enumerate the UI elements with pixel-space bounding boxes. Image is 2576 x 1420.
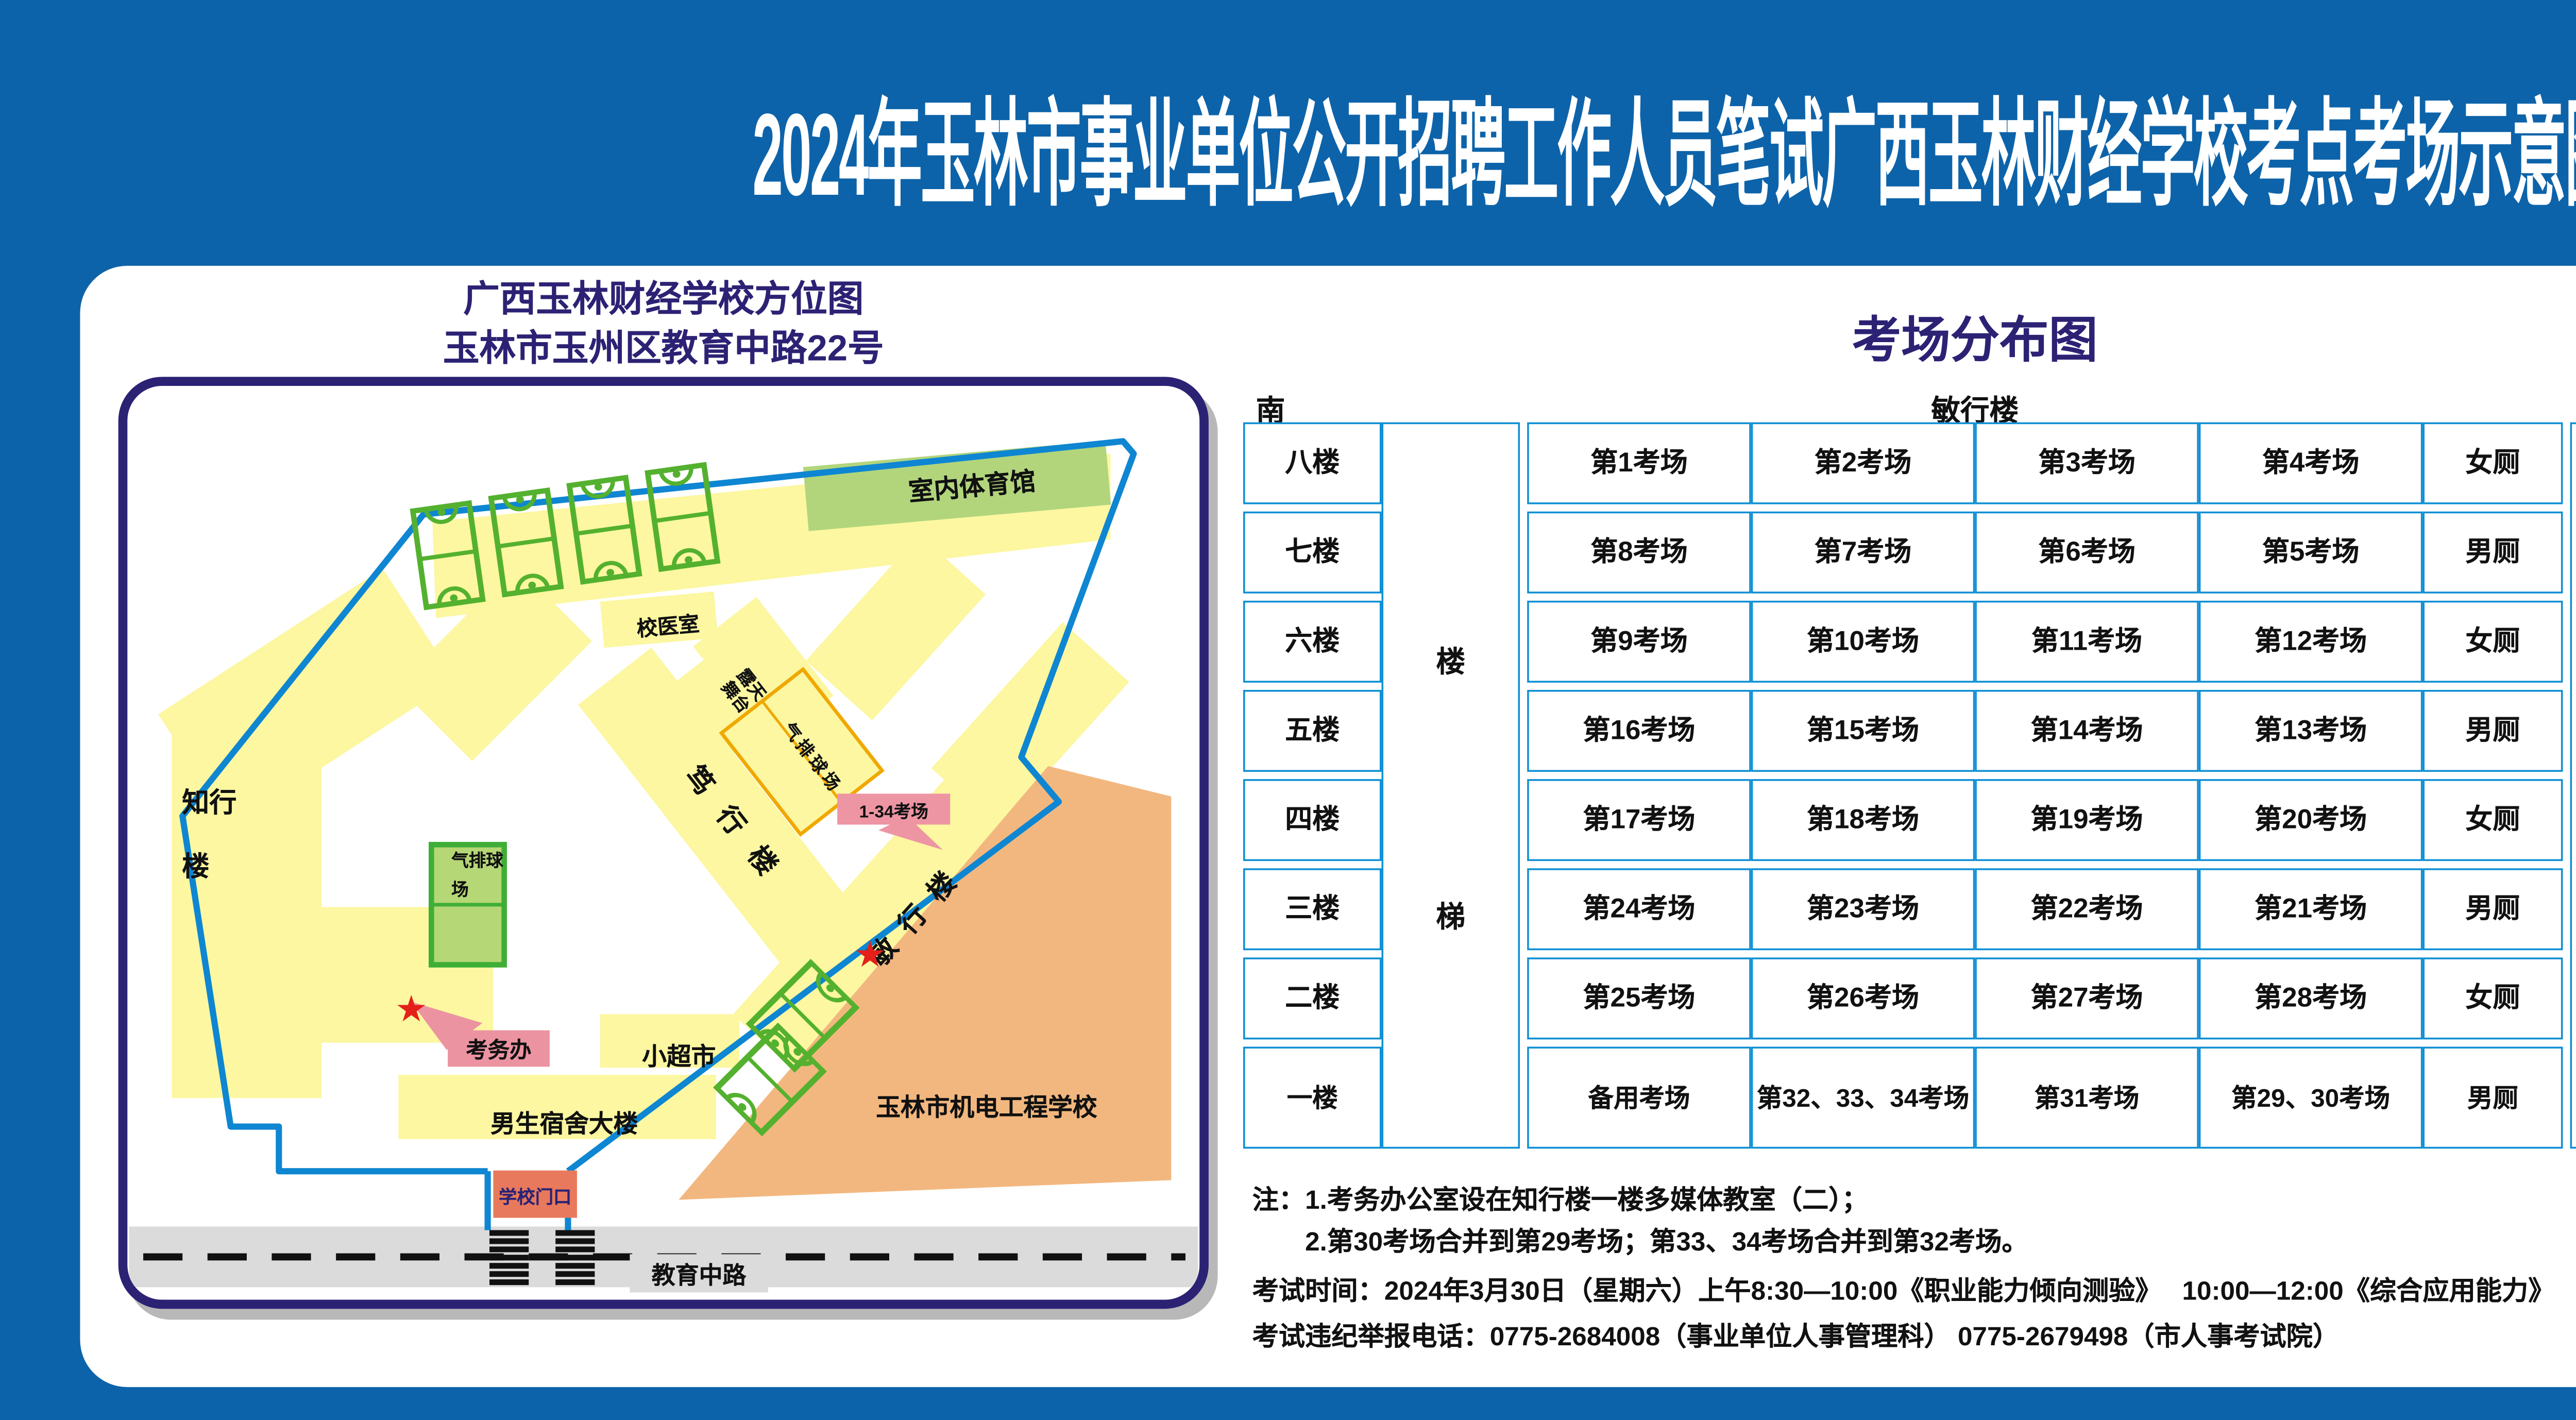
exam-room-cell: 第17考场 <box>1527 779 1751 861</box>
exam-room-cell: 第32、33、34考场 <box>1751 1046 1975 1148</box>
exam-room-cell: 第21考场 <box>2199 868 2423 950</box>
gate-label: 学校门口 <box>493 1171 577 1218</box>
exam-room-cell: 第6考场 <box>1975 512 2199 594</box>
exam-room-cell: 第23考场 <box>1751 868 1975 950</box>
page-title: 2024年玉林市事业单位公开招聘工作人员笔试广西玉林财经学校考点考场示意图 <box>753 62 2087 229</box>
floor-cell: 五楼 <box>1243 690 1382 772</box>
exam-room-cell: 第24考场 <box>1527 868 1751 950</box>
exam-office-label: 考务办 <box>448 1030 550 1067</box>
floor-cell: 七楼 <box>1243 512 1382 594</box>
exam-room-cell: 第18考场 <box>1751 779 1975 861</box>
exam-room-cell: 第19考场 <box>1975 779 2199 861</box>
exam-callout: 1-34考场 <box>837 793 950 824</box>
exam-room-cell: 第29、30考场 <box>2199 1046 2423 1148</box>
supermarket-label: 小超市 <box>608 1027 750 1081</box>
floor-cell: 八楼 <box>1243 422 1382 504</box>
exam-room-cell: 第22考场 <box>1975 868 2199 950</box>
volleyball-court-west: 气排球场 <box>428 841 507 968</box>
exam-room-cell: 第26考场 <box>1751 957 1975 1039</box>
toilet-cell: 男厕 <box>2422 512 2563 594</box>
exam-room-cell: 第11考场 <box>1975 601 2199 683</box>
exam-room-cell: 第25考场 <box>1527 957 1751 1039</box>
toilet-cell: 女厕 <box>2422 422 2563 504</box>
volleyball-west-label: 气排球场 <box>451 848 508 905</box>
exam-room-cell: 第15考场 <box>1751 690 1975 772</box>
stairs-column-left: 楼 梯 <box>1382 422 1520 1149</box>
distribution-title: 考场分布图 <box>1243 300 2576 371</box>
floor-cell: 二楼 <box>1243 957 1382 1039</box>
exam-time: 考试时间：2024年3月30日（星期六）上午8:30—10:00《职业能力倾向测… <box>1252 1278 2576 1309</box>
zhixing-label: 知行楼 <box>182 772 236 899</box>
exam-room-cell: 第4考场 <box>2199 422 2423 504</box>
floor-cell: 四楼 <box>1243 779 1382 861</box>
toilet-cell: 女厕 <box>2422 957 2563 1039</box>
exam-room-cell: 第27考场 <box>1975 957 2199 1039</box>
poster: 2024年玉林市事业单位公开招聘工作人员笔试广西玉林财经学校考点考场示意图 广西… <box>0 0 2576 1420</box>
exam-room-cell: 第5考场 <box>2199 512 2423 594</box>
floor-cell: 一楼 <box>1243 1046 1382 1148</box>
toilet-cell: 女厕 <box>2422 779 2563 861</box>
toilet-cell: 男厕 <box>2422 1046 2563 1148</box>
exam-room-cell: 第20考场 <box>2199 779 2423 861</box>
toilet-cell: 女厕 <box>2422 601 2563 683</box>
dorm-label: 男生宿舍大楼 <box>402 1089 726 1154</box>
floor-cell: 六楼 <box>1243 601 1382 683</box>
note-2: 2.第30考场合并到第29考场；第33、34考场合并到第32考场。 <box>1252 1229 2576 1260</box>
exam-room-cell: 第2考场 <box>1751 422 1975 504</box>
map-title: 广西玉林财经学校方位图 玉林市玉州区教育中路22号 <box>118 277 1209 375</box>
map-title-line1: 广西玉林财经学校方位图 <box>118 277 1209 326</box>
exam-room-cell: 第7考场 <box>1751 512 1975 594</box>
stairs-column-right: 楼 梯 <box>2570 422 2576 1149</box>
exam-room-cell: 第12考场 <box>2199 601 2423 683</box>
exam-room-cell: 第9考场 <box>1527 601 1751 683</box>
exam-room-cell: 第8考场 <box>1527 512 1751 594</box>
campus-map: 气排球场 室内体育馆 校医室 露天 舞台 笃行楼 气排球场 1-34考场 敏行楼… <box>118 377 1209 1309</box>
road-label: 教育中路 <box>630 1254 768 1292</box>
neighbor-school-label: 玉林市机电工程学校 <box>805 1087 1169 1123</box>
report-hotline: 考试违纪举报电话：0775-2684008（事业单位人事管理科） 0775-26… <box>1252 1323 2576 1354</box>
exam-room-cell: 第28考场 <box>2199 957 2423 1039</box>
exam-room-cell: 备用考场 <box>1527 1046 1751 1148</box>
exam-room-cell: 第1考场 <box>1527 422 1751 504</box>
exam-room-cell: 第14考场 <box>1975 690 2199 772</box>
floor-cell: 三楼 <box>1243 868 1382 950</box>
toilet-cell: 男厕 <box>2422 690 2563 772</box>
exam-room-cell: 第31考场 <box>1975 1046 2199 1148</box>
toilet-cell: 男厕 <box>2422 868 2563 950</box>
office-star: ★ <box>395 992 428 1028</box>
exam-room-cell: 第10考场 <box>1751 601 1975 683</box>
exam-room-cell: 第13考场 <box>2199 690 2423 772</box>
note-1: 注：1.考务办公室设在知行楼一楼多媒体教室（二）； <box>1252 1187 2576 1218</box>
distribution-table: 楼 梯 楼 梯 八楼第1考场第2考场第3考场第4考场女厕七楼第8考场第7考场第6… <box>1243 422 2576 1149</box>
exam-room-cell: 第16考场 <box>1527 690 1751 772</box>
exam-room-cell: 第3考场 <box>1975 422 2199 504</box>
minxing-star: ★ <box>854 937 886 974</box>
map-title-line2: 玉林市玉州区教育中路22号 <box>118 326 1209 375</box>
notes: 注：1.考务办公室设在知行楼一楼多媒体教室（二）； 2.第30考场合并到第29考… <box>1252 1187 2576 1365</box>
